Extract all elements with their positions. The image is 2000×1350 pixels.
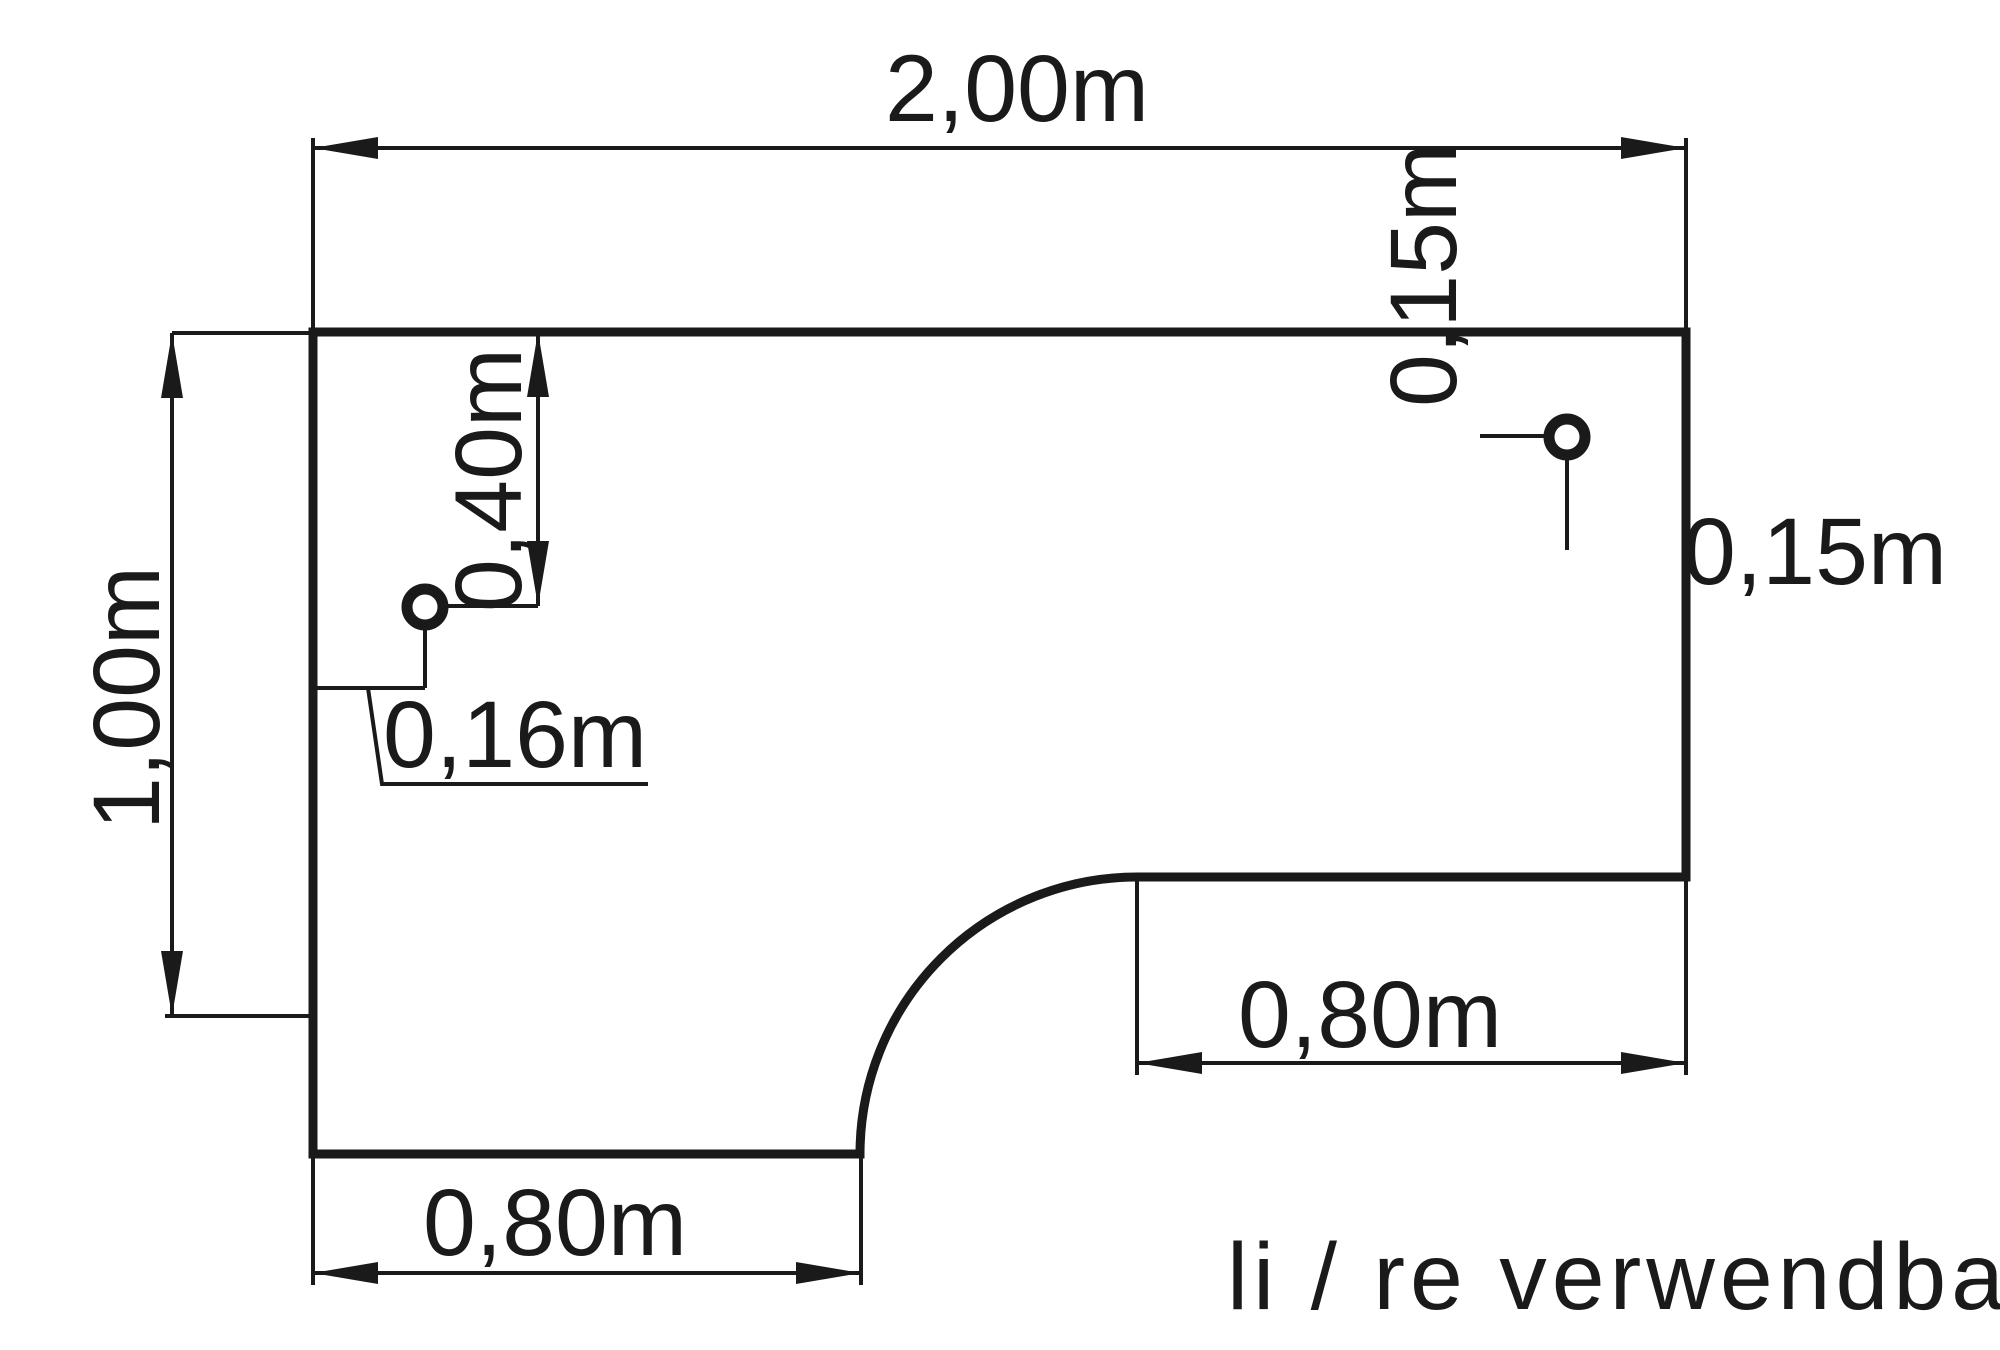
- arrow-bottom-return-left: [313, 1262, 378, 1284]
- arrow-bottom-return-right: [796, 1262, 861, 1284]
- dimension-label-left-hole-from-top: 0,40m: [442, 348, 537, 612]
- arrow-top-left: [313, 137, 378, 159]
- arrow-left-down: [161, 951, 183, 1016]
- usage-note: li / re verwendbar: [1227, 1230, 2000, 1325]
- technical-drawing: 2,00m 1,00m 0,40m 0,16m 0,15m 0,15m 0,80…: [0, 0, 2000, 1350]
- dimension-label-top-width: 2,00m: [885, 42, 1149, 137]
- arrow-top-right: [1621, 137, 1686, 159]
- dimension-label-left-hole-from-left-edge: 0,16m: [383, 688, 647, 783]
- arrow-right-return-right: [1621, 1052, 1686, 1074]
- arrow-left-up: [161, 333, 183, 398]
- dimension-label-right-return-width: 0,80m: [1238, 968, 1502, 1063]
- dimension-label-right-hole-from-right-edge: 0,15m: [1683, 505, 1947, 600]
- arrow-right-return-left: [1137, 1052, 1202, 1074]
- dimension-label-right-hole-from-top: 0,15m: [1377, 143, 1472, 407]
- drawing-canvas: [0, 0, 2000, 1350]
- dimension-label-bottom-return-width: 0,80m: [423, 1176, 687, 1271]
- grommet-hole-right: [1549, 419, 1585, 455]
- dimension-label-left-depth: 1,00m: [80, 566, 175, 830]
